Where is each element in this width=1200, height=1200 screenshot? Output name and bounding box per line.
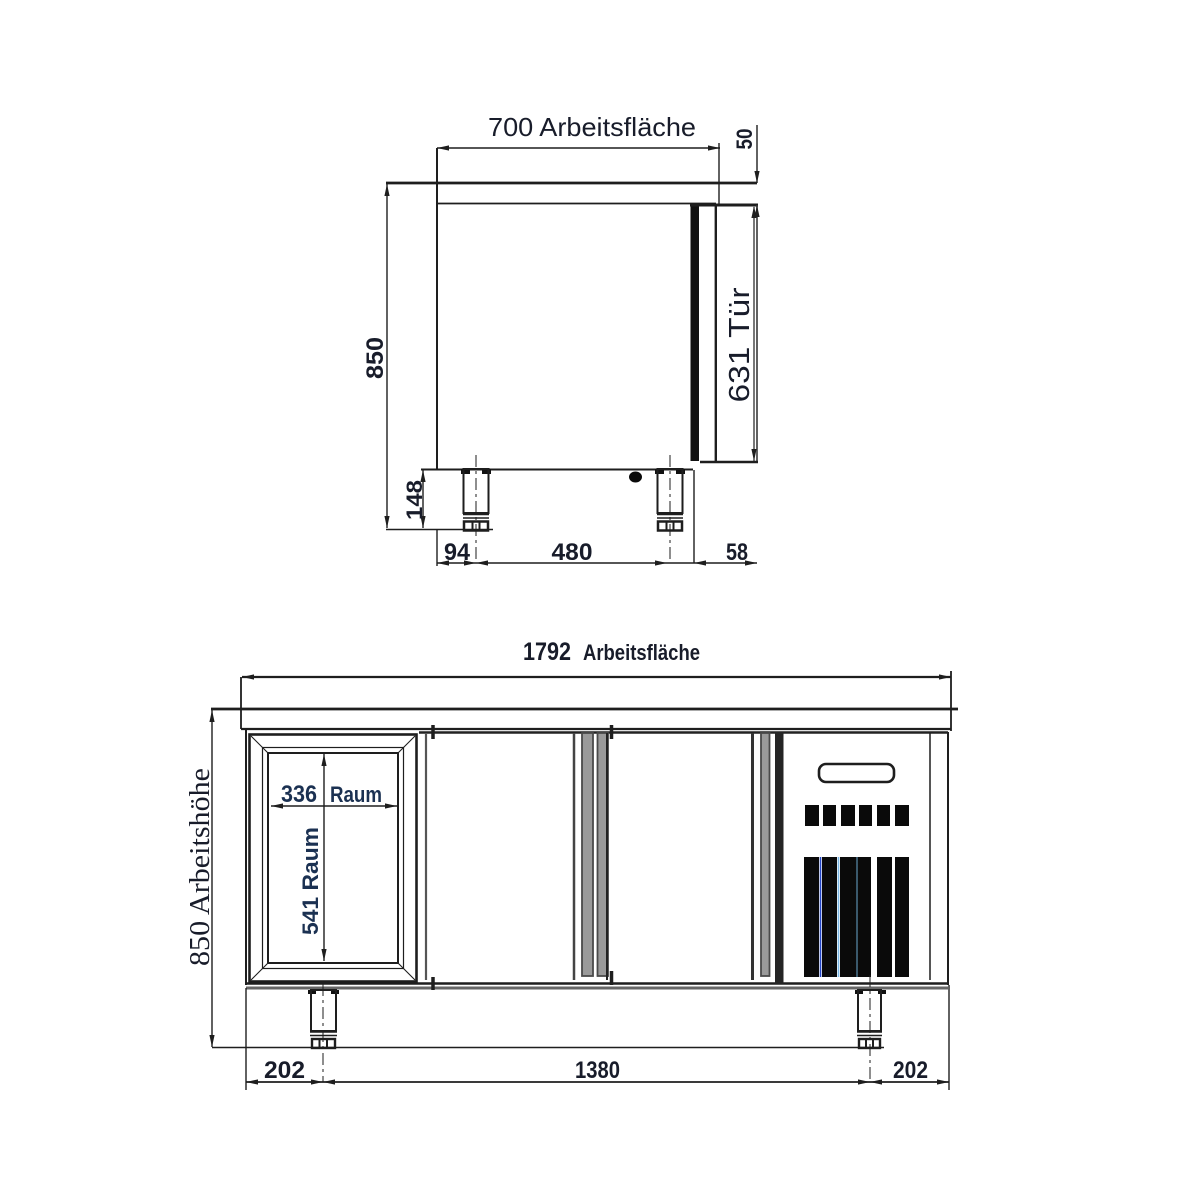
- svg-text:Arbeitsfläche: Arbeitsfläche: [583, 640, 700, 665]
- svg-text:336: 336: [281, 781, 317, 808]
- svg-text:631 Tür: 631 Tür: [724, 287, 756, 402]
- svg-text:Raum: Raum: [330, 782, 382, 807]
- svg-text:50: 50: [732, 129, 757, 150]
- svg-text:58: 58: [726, 539, 748, 566]
- svg-text:94: 94: [444, 539, 471, 566]
- svg-text:541 Raum: 541 Raum: [298, 827, 323, 935]
- svg-text:480: 480: [552, 539, 593, 566]
- svg-text:202: 202: [893, 1057, 928, 1084]
- svg-text:850 Arbeitshöhe: 850 Arbeitshöhe: [185, 768, 216, 966]
- svg-text:1792: 1792: [523, 638, 571, 666]
- svg-text:700 Arbeitsfläche: 700 Arbeitsfläche: [488, 112, 696, 142]
- svg-text:1380: 1380: [575, 1057, 620, 1084]
- svg-text:850: 850: [362, 337, 389, 379]
- svg-text:202: 202: [264, 1057, 305, 1084]
- svg-text:148: 148: [402, 480, 427, 520]
